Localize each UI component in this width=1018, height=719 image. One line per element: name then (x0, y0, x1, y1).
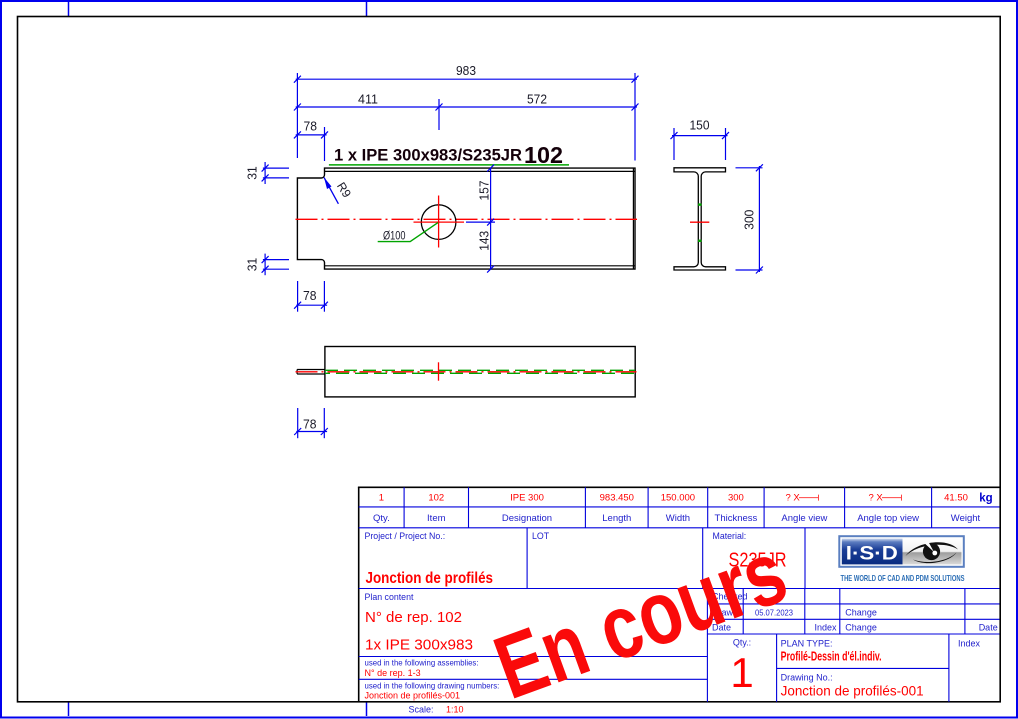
svg-text:31: 31 (245, 166, 260, 180)
svg-text:150.000: 150.000 (661, 493, 695, 504)
svg-text:41.50: 41.50 (944, 493, 968, 504)
svg-text:78: 78 (304, 119, 318, 134)
svg-text:Qty.: Qty. (373, 513, 390, 524)
svg-text:used in the following assembli: used in the following assemblies: (365, 659, 479, 668)
svg-text:102: 102 (428, 493, 444, 504)
svg-text:Drawing No.:: Drawing No.: (781, 672, 833, 682)
svg-text:Project / Project No.:: Project / Project No.: (365, 531, 446, 541)
svg-text:N° de rep. 102: N° de rep. 102 (365, 610, 462, 626)
svg-text:used in the following drawing: used in the following drawing numbers: (365, 682, 500, 691)
svg-text:? X: ? X (786, 493, 801, 504)
svg-text:PLAN TYPE:: PLAN TYPE: (781, 639, 833, 649)
svg-text:Date: Date (979, 623, 998, 633)
svg-text:Plan content: Plan content (365, 592, 414, 602)
svg-text:983: 983 (456, 63, 476, 78)
svg-text:Angle view: Angle view (781, 513, 827, 524)
svg-text:300: 300 (728, 493, 744, 504)
svg-text:THE WORLD OF CAD AND PDM SOLUT: THE WORLD OF CAD AND PDM SOLUTIONS (841, 573, 965, 583)
svg-text:1x IPE 300x983: 1x IPE 300x983 (365, 638, 473, 654)
svg-text:LOT: LOT (532, 531, 550, 541)
svg-text:983.450: 983.450 (600, 493, 634, 504)
svg-text:Index: Index (958, 639, 981, 649)
svg-text:102: 102 (524, 142, 563, 168)
svg-text:Index: Index (815, 623, 838, 633)
svg-text:Length: Length (602, 513, 631, 524)
svg-text:N° de rep. 1-3: N° de rep. 1-3 (365, 668, 421, 678)
svg-text:Ø100: Ø100 (383, 230, 406, 242)
svg-text:1:10: 1:10 (446, 705, 464, 715)
svg-text:143: 143 (477, 231, 492, 251)
svg-text:411: 411 (358, 91, 378, 106)
svg-text:Jonction de profilés-001: Jonction de profilés-001 (365, 691, 461, 701)
svg-text:IPE 300: IPE 300 (510, 493, 544, 504)
svg-text:572: 572 (527, 91, 547, 106)
svg-text:Thickness: Thickness (715, 513, 758, 524)
svg-text:78: 78 (303, 288, 317, 303)
svg-text:I·S·D: I·S·D (846, 544, 898, 565)
svg-text:1: 1 (379, 493, 384, 504)
svg-text:78: 78 (303, 416, 317, 431)
svg-text:1 x IPE 300x983/S235JR: 1 x IPE 300x983/S235JR (334, 147, 522, 165)
svg-text:Designation: Designation (502, 513, 552, 524)
svg-text:Scale:: Scale: (409, 705, 434, 715)
svg-text:Item: Item (427, 513, 446, 524)
svg-text:300: 300 (742, 210, 757, 230)
svg-text:150: 150 (690, 117, 710, 132)
svg-text:157: 157 (477, 181, 492, 201)
svg-text:Change: Change (845, 608, 877, 618)
svg-text:Profilé-Dessin d'él.indiv.: Profilé-Dessin d'él.indiv. (781, 650, 882, 664)
svg-text:Change: Change (845, 623, 877, 633)
svg-text:Width: Width (666, 513, 690, 524)
svg-text:Weight: Weight (951, 513, 981, 524)
svg-text:31: 31 (245, 258, 260, 272)
svg-text:Jonction de profilés-001: Jonction de profilés-001 (781, 684, 924, 699)
svg-text:Angle top view: Angle top view (857, 513, 919, 524)
svg-text:1: 1 (730, 649, 753, 696)
svg-text:kg: kg (979, 493, 992, 505)
svg-text:Jonction de profilés: Jonction de profilés (366, 570, 494, 587)
svg-text:? X: ? X (869, 493, 884, 504)
